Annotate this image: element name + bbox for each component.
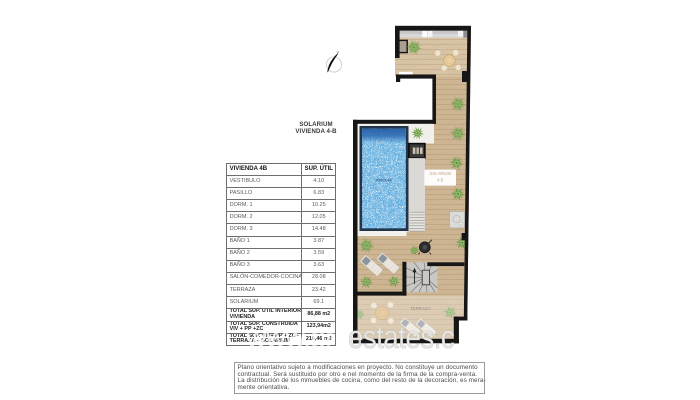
svg-text:PISCINA: PISCINA	[376, 177, 392, 182]
svg-text:4-B: 4-B	[437, 177, 444, 182]
svg-text:SOLARIUM: SOLARIUM	[430, 171, 452, 176]
